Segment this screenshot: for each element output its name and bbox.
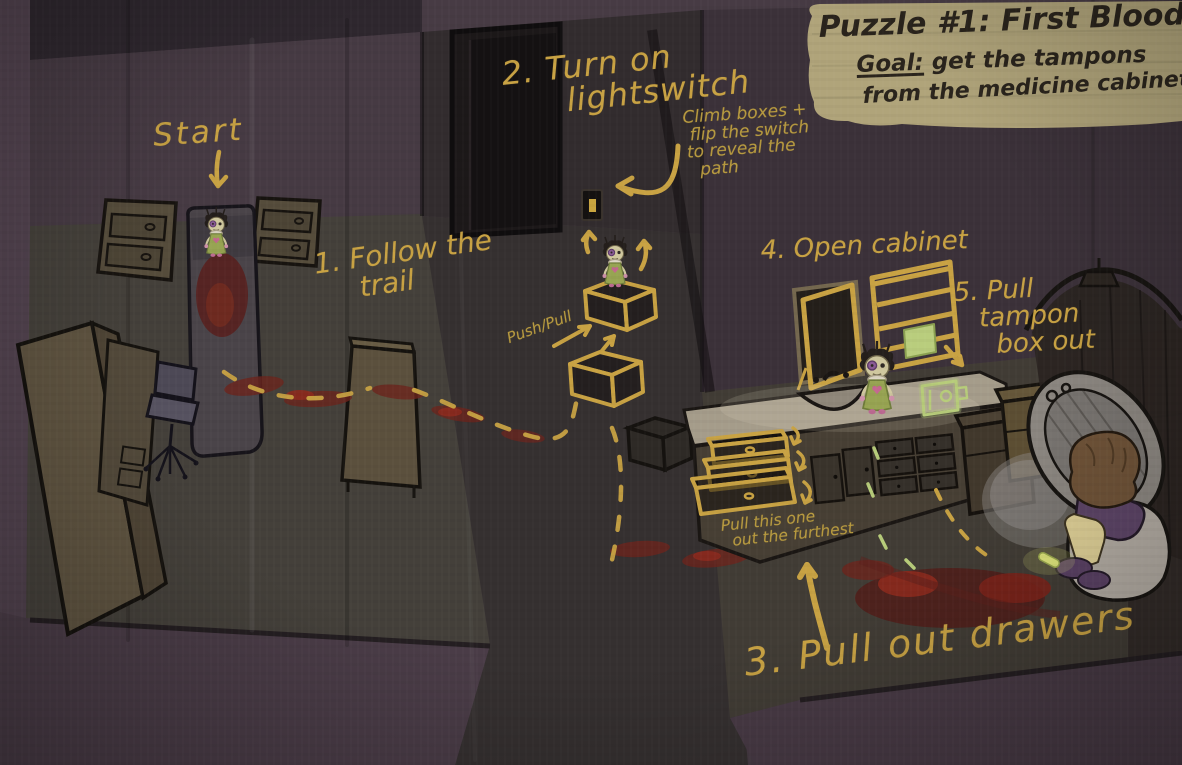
desk	[99, 340, 158, 505]
tampon-box-in-cabinet	[904, 324, 936, 358]
dresser	[342, 338, 420, 498]
step5-line3: box out	[996, 327, 1096, 359]
glow-stick	[1023, 547, 1075, 575]
annotation-step2-note: Climb boxes + flip the switch to reveal …	[682, 101, 812, 180]
crate-top	[585, 280, 656, 330]
annotation-start: Start	[152, 114, 245, 152]
crate-bottom	[570, 352, 643, 406]
light-switch	[582, 190, 602, 220]
puzzle-plan-sketch: Puzzle #1: First Blood Goal: get the tam…	[0, 0, 1182, 765]
nightstand-left	[98, 200, 176, 280]
goal-label: Goal:	[856, 50, 924, 78]
nightstand-right	[252, 198, 320, 266]
crate-dark	[628, 418, 692, 470]
annotation-step5: 5. Pull tampon box out	[953, 273, 1096, 361]
hair	[1070, 432, 1139, 508]
